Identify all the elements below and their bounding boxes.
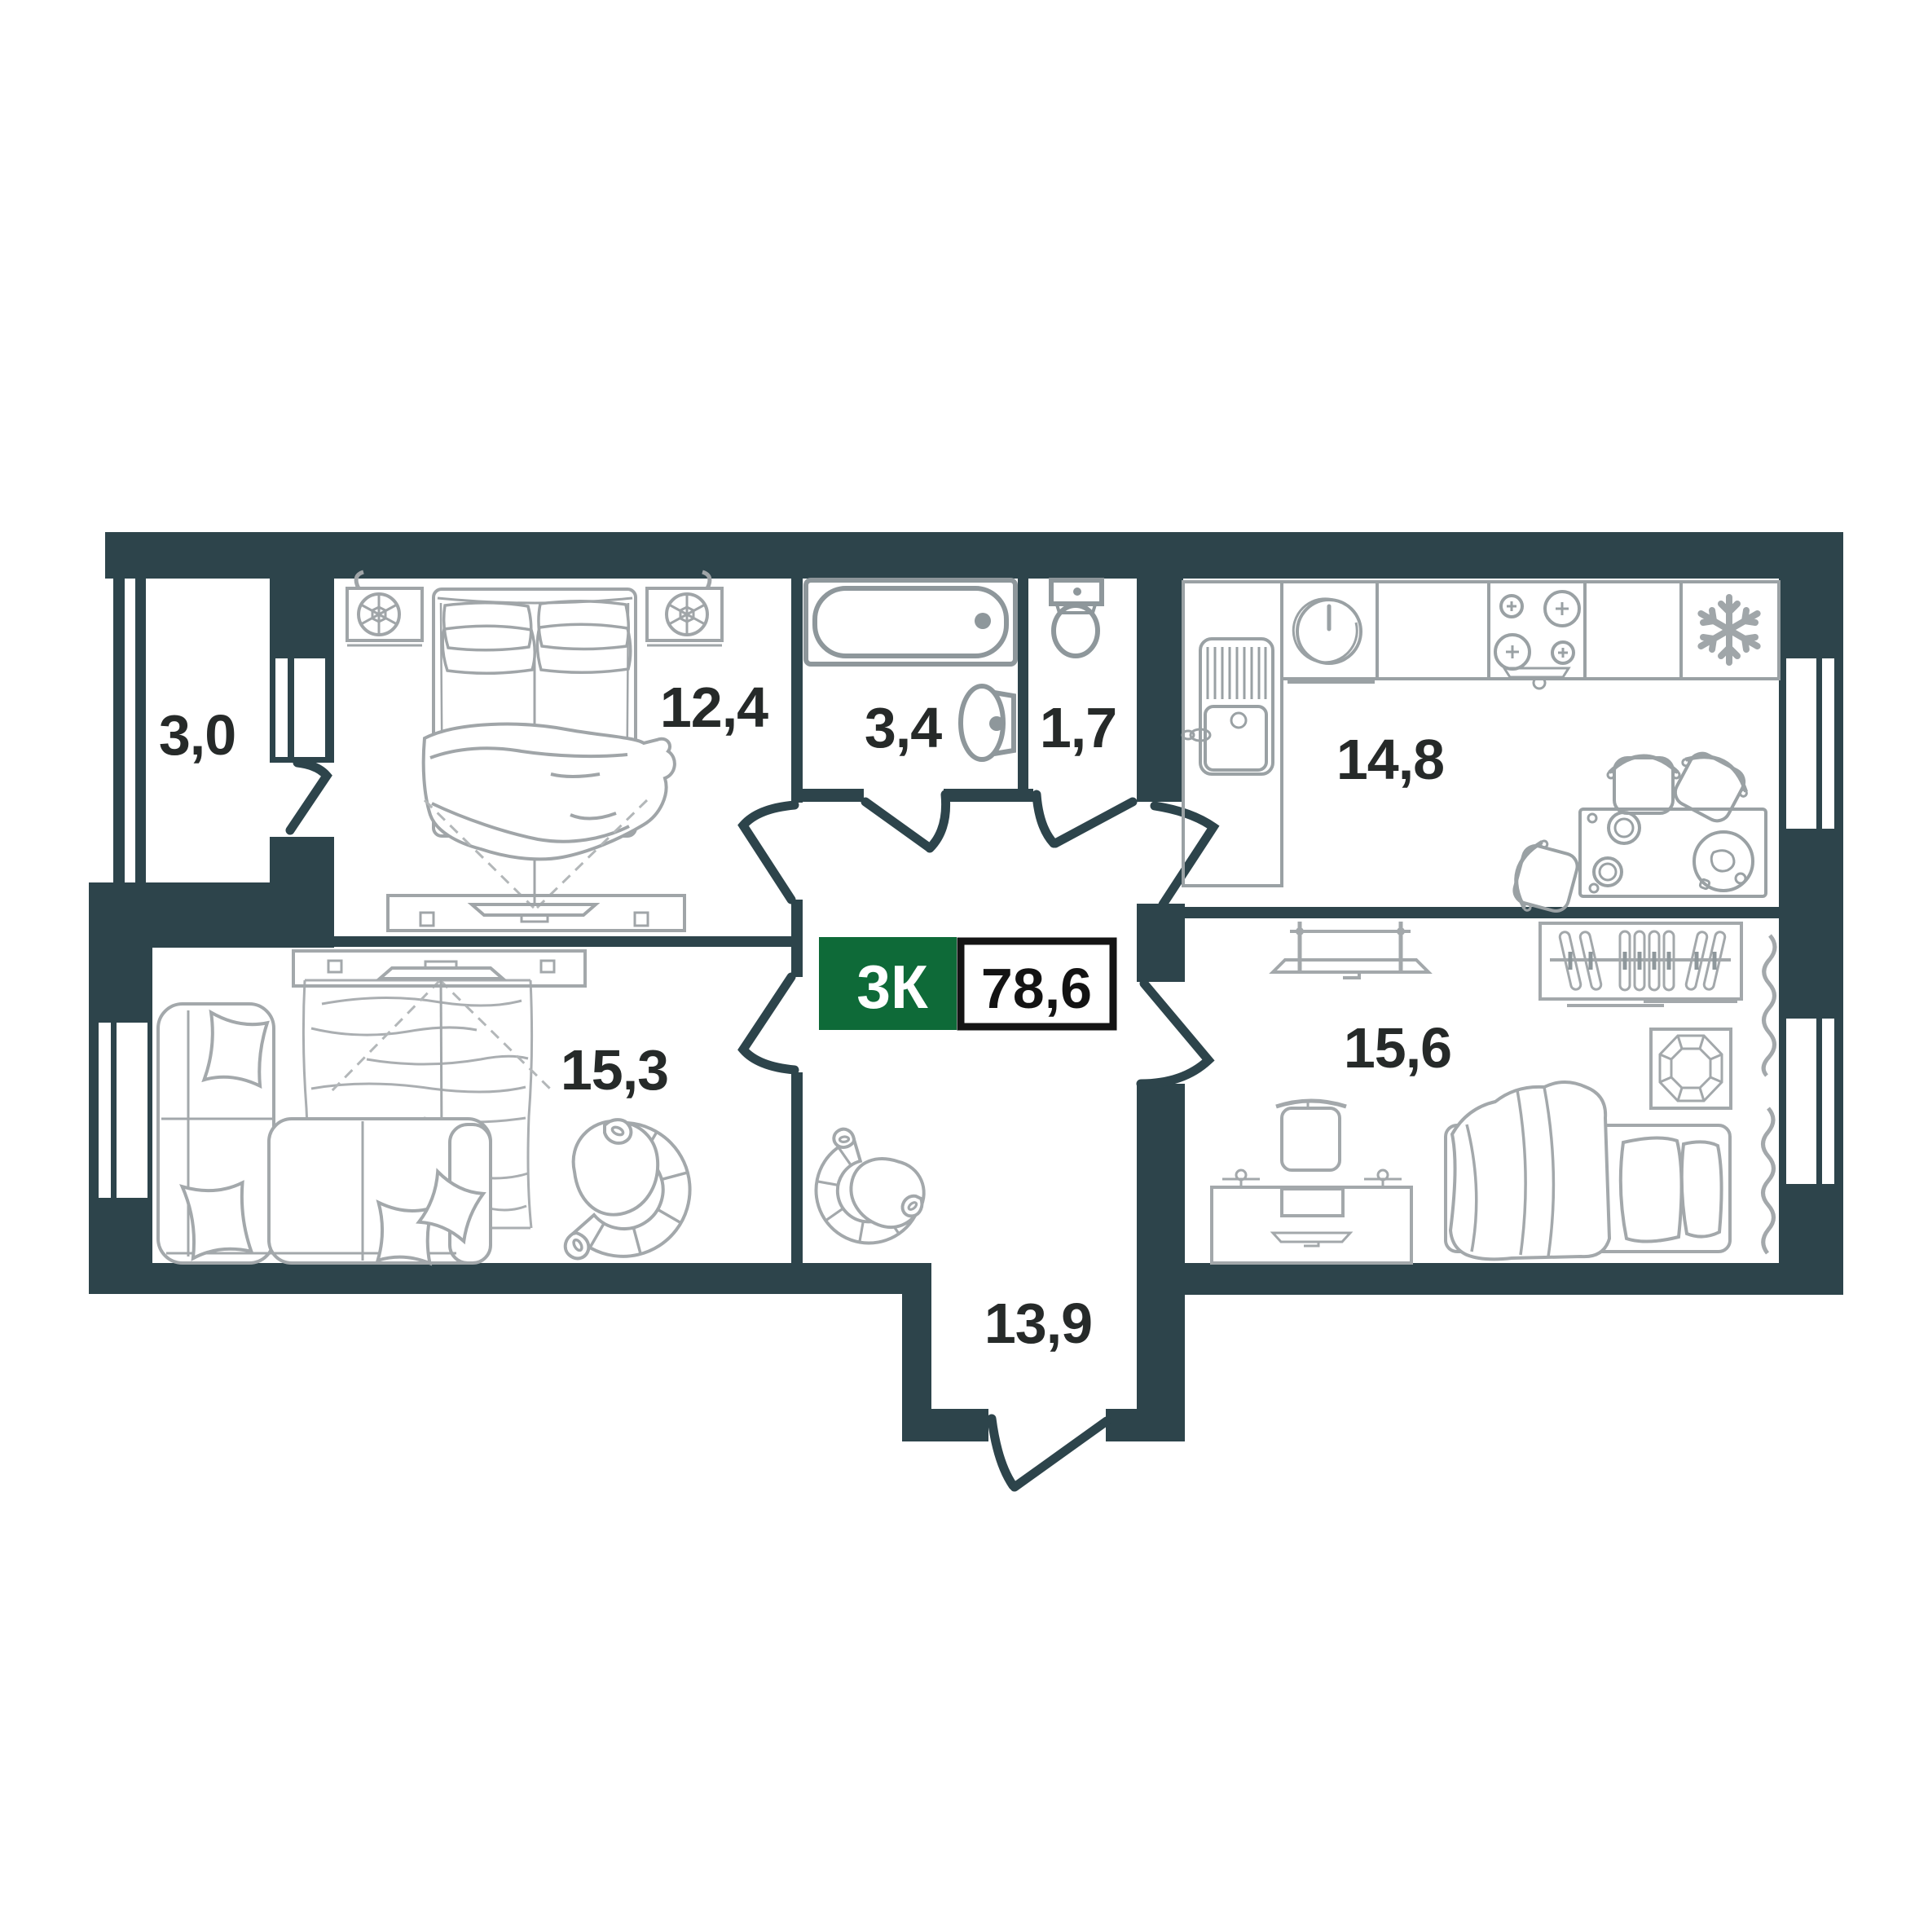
svg-text:78,6: 78,6 bbox=[981, 957, 1092, 1020]
svg-text:3К: 3К bbox=[856, 953, 928, 1021]
svg-text:1,7: 1,7 bbox=[1040, 696, 1116, 759]
svg-text:14,8: 14,8 bbox=[1336, 728, 1444, 791]
svg-text:15,3: 15,3 bbox=[561, 1038, 668, 1102]
svg-text:3,0: 3,0 bbox=[159, 703, 235, 767]
svg-text:3,4: 3,4 bbox=[865, 696, 942, 759]
svg-text:12,4: 12,4 bbox=[660, 676, 768, 739]
svg-text:15,6: 15,6 bbox=[1344, 1016, 1451, 1080]
svg-text:13,9: 13,9 bbox=[984, 1292, 1092, 1355]
